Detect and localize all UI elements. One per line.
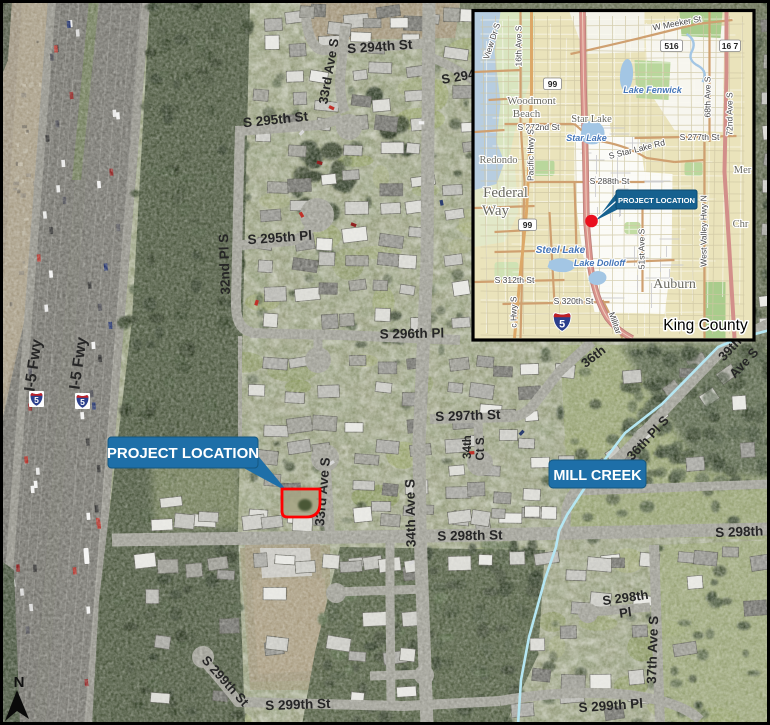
- svg-text:Beach: Beach: [513, 108, 541, 120]
- svg-text:5: 5: [559, 319, 565, 331]
- svg-text:S 312th St: S 312th St: [495, 275, 535, 285]
- svg-text:Star Lake: Star Lake: [566, 133, 607, 143]
- svg-text:37th Ave S: 37th Ave S: [644, 616, 661, 685]
- svg-text:Redondo: Redondo: [480, 155, 518, 166]
- svg-text:Pl: Pl: [618, 604, 632, 621]
- svg-text:Auburn: Auburn: [653, 277, 696, 292]
- svg-text:Mer: Mer: [734, 165, 752, 176]
- svg-text:34th Ave S: 34th Ave S: [402, 479, 418, 547]
- svg-text:Star Lake: Star Lake: [571, 114, 612, 125]
- svg-text:MILL CREEK: MILL CREEK: [553, 468, 642, 484]
- svg-text:N: N: [14, 674, 25, 691]
- svg-text:S 288th St: S 288th St: [590, 176, 630, 186]
- svg-text:S 298th St: S 298th St: [715, 523, 770, 540]
- svg-text:5: 5: [80, 397, 85, 407]
- svg-text:Lake Dolloff: Lake Dolloff: [574, 258, 626, 268]
- svg-text:S 297th St: S 297th St: [435, 407, 501, 424]
- svg-text:5: 5: [34, 395, 39, 405]
- svg-text:King County: King County: [663, 317, 748, 334]
- svg-text:34th: 34th: [462, 435, 474, 459]
- svg-text:West Valley Hwy N: West Valley Hwy N: [699, 195, 709, 266]
- svg-text:72nd Ave S: 72nd Ave S: [725, 92, 735, 136]
- svg-text:16th Ave S: 16th Ave S: [514, 25, 524, 66]
- svg-text:99: 99: [523, 220, 533, 230]
- svg-text:Chr: Chr: [733, 219, 749, 230]
- svg-text:PROJECT LOCATION: PROJECT LOCATION: [107, 445, 259, 462]
- svg-text:68th Ave S: 68th Ave S: [703, 76, 713, 117]
- svg-text:S 272nd St: S 272nd St: [517, 122, 560, 132]
- svg-text:PROJECT LOCATION: PROJECT LOCATION: [618, 196, 695, 205]
- svg-text:S 320th St: S 320th St: [554, 296, 594, 306]
- svg-text:32nd Pl S: 32nd Pl S: [216, 234, 233, 295]
- svg-text:S 299th St: S 299th St: [265, 696, 331, 713]
- svg-text:S 296th Pl: S 296th Pl: [380, 325, 445, 341]
- svg-text:Way: Way: [482, 203, 510, 219]
- svg-text:Ct S: Ct S: [475, 437, 487, 460]
- svg-text:Steel Lake: Steel Lake: [536, 245, 586, 256]
- svg-text:516: 516: [664, 41, 678, 51]
- svg-text:c Hwy S: c Hwy S: [509, 296, 519, 328]
- svg-text:Pacific Hwy S: Pacific Hwy S: [526, 129, 536, 181]
- svg-text:51st Ave S: 51st Ave S: [637, 228, 647, 269]
- svg-text:16 7: 16 7: [722, 41, 739, 51]
- svg-text:S 277th St: S 277th St: [680, 132, 720, 142]
- svg-text:Woodmont: Woodmont: [507, 95, 556, 107]
- svg-text:99: 99: [548, 79, 558, 89]
- svg-text:S 298th St: S 298th St: [437, 527, 503, 543]
- svg-text:Lake Fenwick: Lake Fenwick: [623, 85, 683, 95]
- svg-text:Federal: Federal: [483, 185, 528, 201]
